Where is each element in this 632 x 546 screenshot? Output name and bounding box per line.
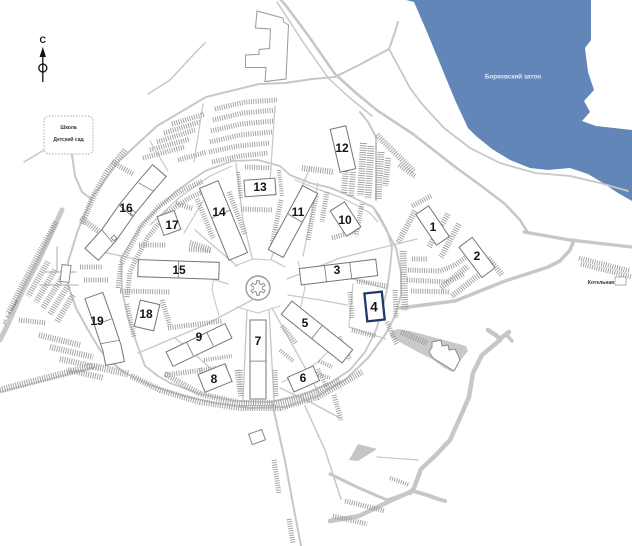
svg-text:Школа: Школа [60,125,77,131]
svg-text:15: 15 [172,263,186,277]
svg-text:5: 5 [302,316,309,330]
svg-text:2: 2 [474,249,481,263]
svg-text:Детский сад: Детский сад [53,136,84,143]
svg-text:18: 18 [139,307,153,321]
svg-text:1: 1 [430,220,437,234]
svg-text:3: 3 [334,263,341,277]
svg-text:10: 10 [338,213,352,227]
svg-text:19: 19 [90,314,104,328]
svg-text:16: 16 [119,201,133,215]
svg-text:11: 11 [292,205,305,219]
svg-text:4: 4 [370,300,378,315]
svg-text:17: 17 [165,218,179,232]
svg-text:8: 8 [211,372,218,386]
svg-text:14: 14 [212,205,226,219]
svg-text:Борковский затон: Борковский затон [485,73,541,81]
svg-text:7: 7 [255,334,262,348]
svg-text:6: 6 [300,371,307,385]
svg-text:9: 9 [196,330,203,344]
svg-text:12: 12 [335,141,349,155]
svg-text:Котельная: Котельная [588,280,614,286]
svg-text:13: 13 [253,180,267,194]
svg-text:С: С [40,35,47,45]
